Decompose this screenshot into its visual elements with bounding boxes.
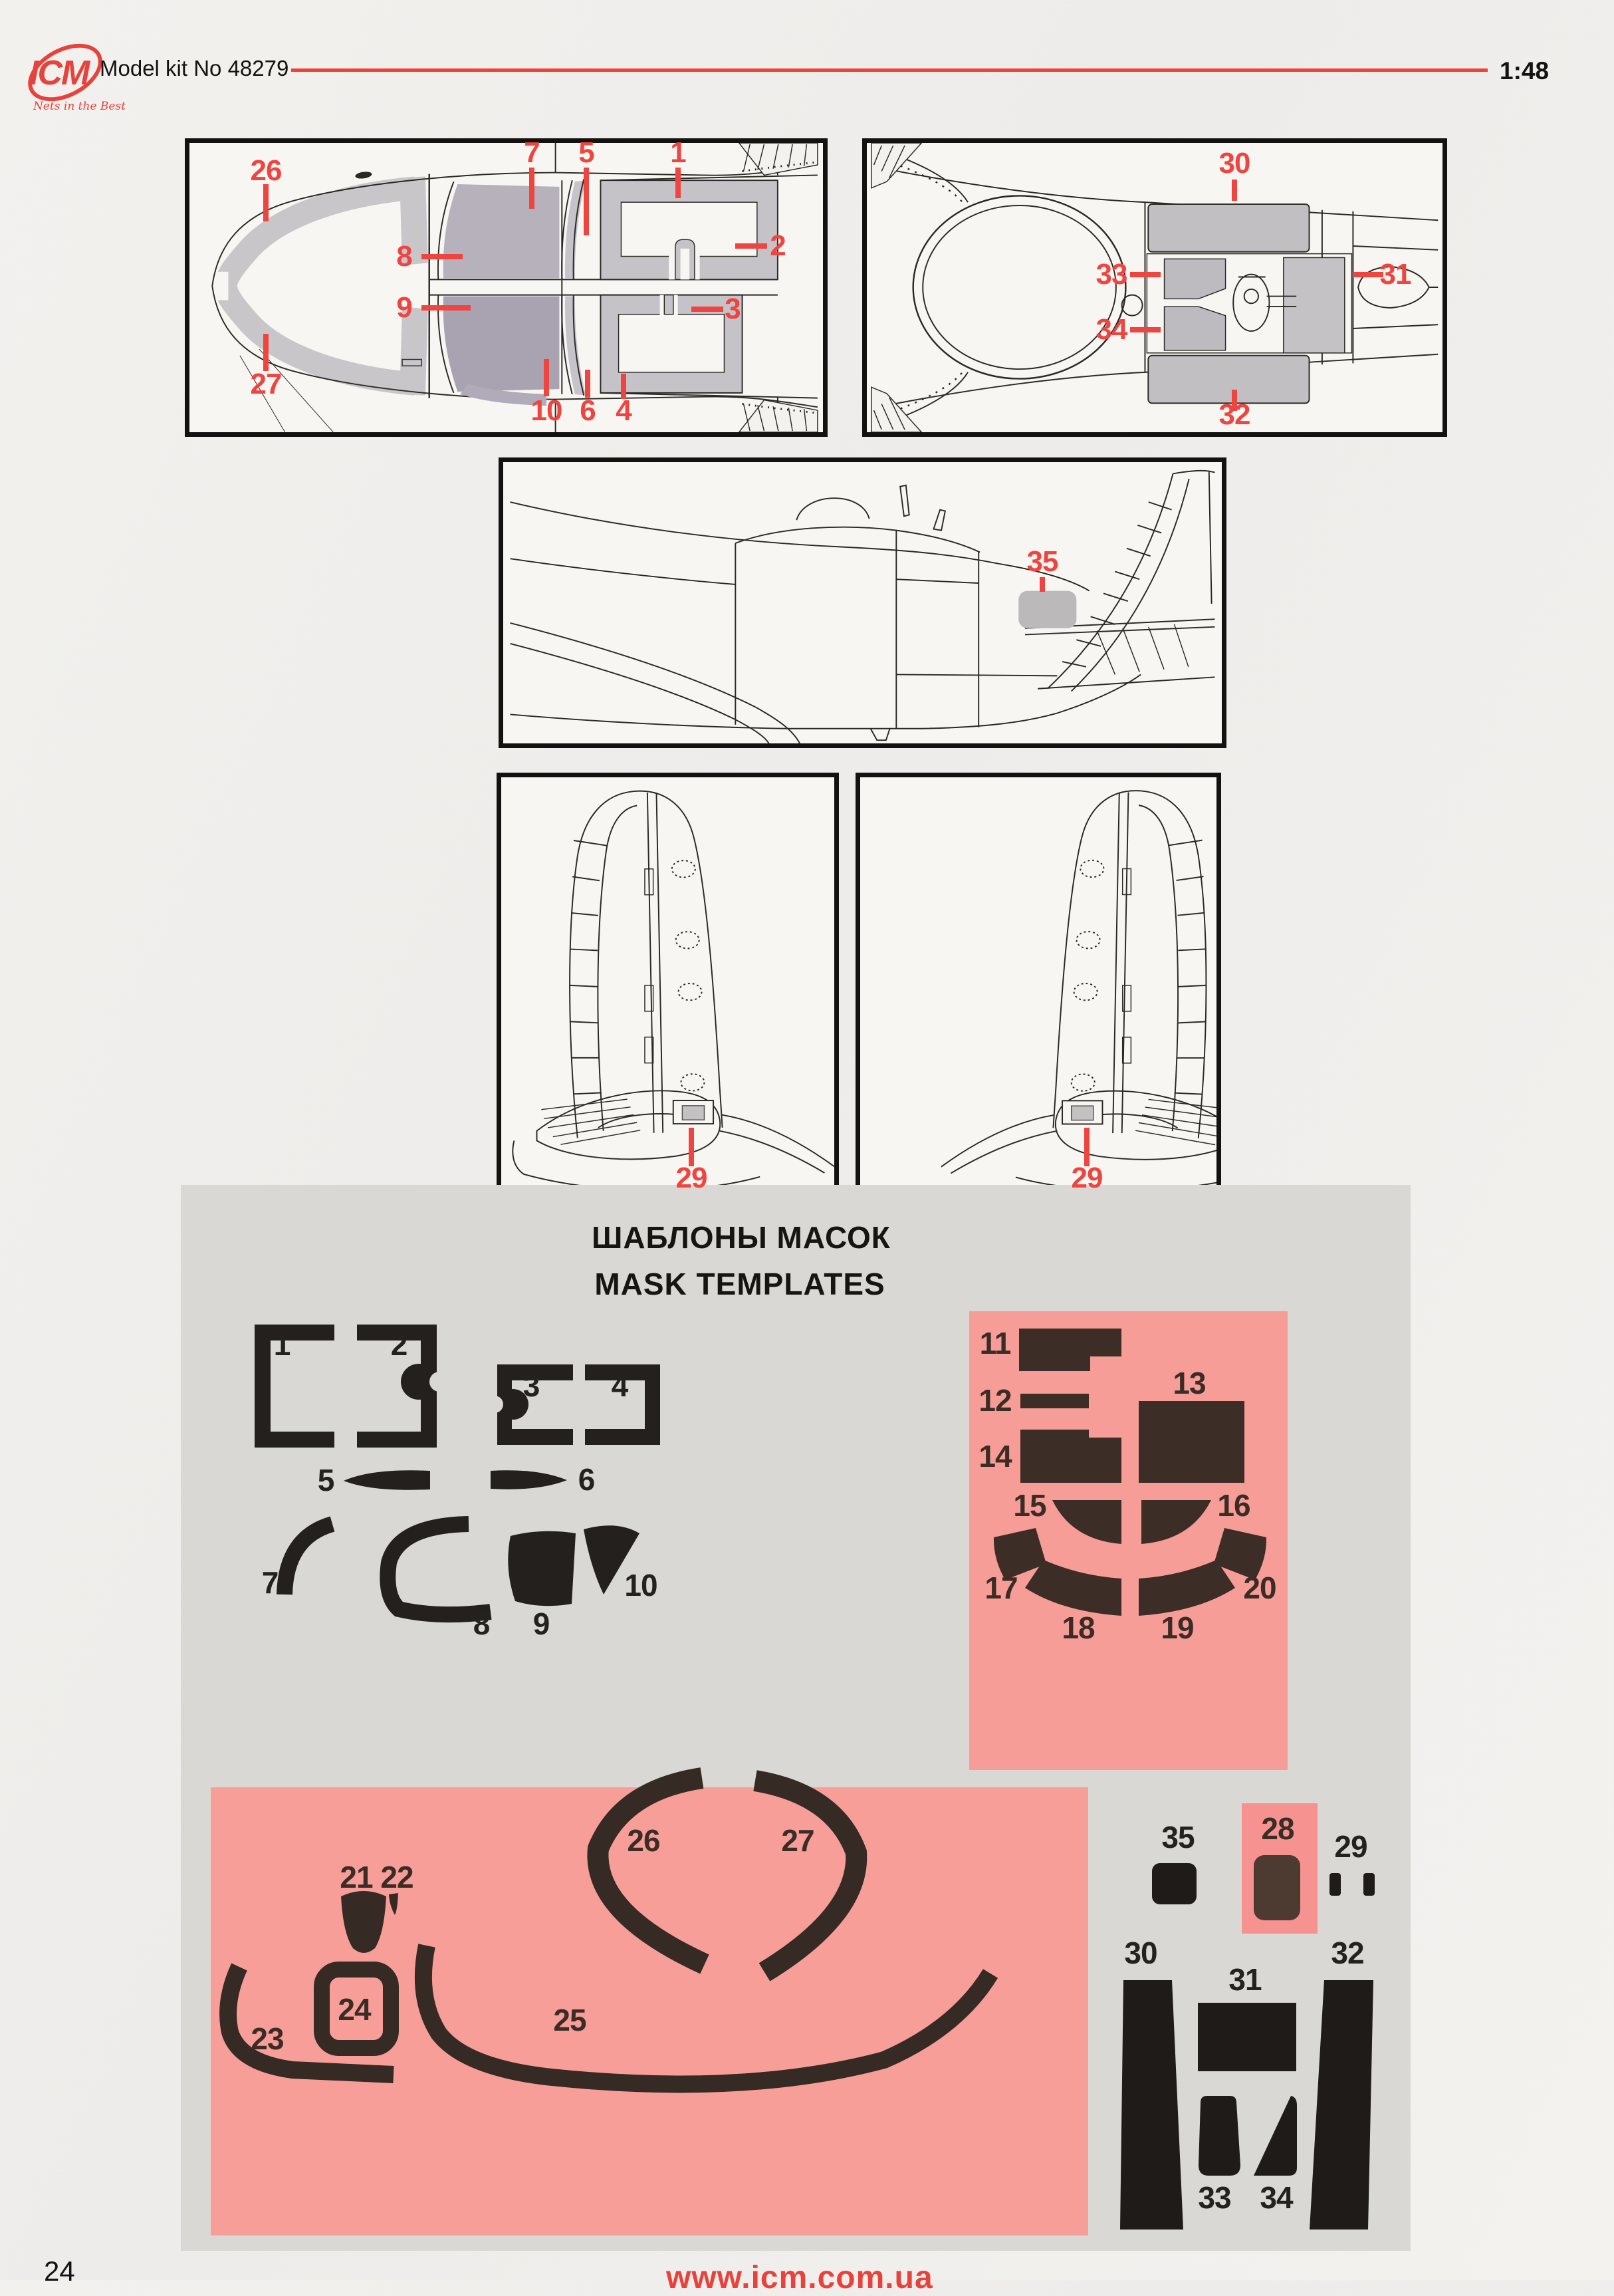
callout-line-4: [621, 374, 626, 399]
mask-template-5: [344, 1470, 430, 1489]
mask-template-label-7: 7: [262, 1565, 279, 1600]
mask-template-shapes: [0, 0, 1614, 2280]
callout-label-27: 27: [251, 368, 282, 401]
callout-line-29: [689, 1128, 694, 1166]
mask-template-30: [1120, 1980, 1183, 2230]
callout-label-35: 35: [1027, 545, 1058, 578]
mask-template-label-21: 21: [340, 1859, 372, 1895]
callout-label-10: 10: [531, 394, 562, 428]
callout-label-31: 31: [1380, 258, 1411, 291]
mask-template-29a: [1329, 1873, 1341, 1896]
mask-template-label-19: 19: [1161, 1610, 1193, 1646]
mask-template-label-16: 16: [1217, 1487, 1250, 1523]
callout-line-26: [263, 184, 269, 221]
mask-template-13: [1139, 1401, 1244, 1483]
callout-line-6: [585, 370, 590, 398]
callout-line-7: [529, 168, 534, 209]
mask-template-label-33: 33: [1198, 2180, 1230, 2216]
mask-template-16: [1141, 1500, 1211, 1544]
mask-template-31: [1198, 2003, 1296, 2071]
mask-template-1: [255, 1325, 334, 1448]
mask-template-label-15: 15: [1013, 1487, 1046, 1523]
mask-template-label-8: 8: [473, 1606, 490, 1642]
mask-template-label-34: 34: [1260, 2180, 1292, 2216]
mask-template-27: [755, 1781, 856, 1972]
mask-template-label-6: 6: [578, 1462, 595, 1497]
callout-label-34: 34: [1096, 313, 1127, 346]
mask-template-25: [423, 1946, 990, 2084]
mask-template-label-22: 22: [380, 1859, 413, 1895]
callout-label-3: 3: [725, 293, 740, 326]
callout-line-31: [1353, 272, 1383, 277]
mask-template-11: [1019, 1329, 1121, 1371]
mask-template-12: [1020, 1394, 1089, 1408]
mask-template-label-20: 20: [1243, 1570, 1276, 1606]
mask-template-18: [1025, 1560, 1121, 1616]
mask-template-34: [1254, 2096, 1297, 2176]
mask-shapes-gray: [255, 1325, 660, 1614]
website-url: www.icm.com.ua: [666, 2259, 933, 2296]
callout-line-35: [1040, 577, 1045, 592]
callout-label-5: 5: [578, 136, 594, 170]
mask-template-label-29: 29: [1334, 1829, 1367, 1864]
callout-label-1: 1: [670, 136, 685, 170]
mask-template-32: [1310, 1980, 1373, 2230]
mask-template-label-12: 12: [979, 1382, 1011, 1418]
mask-shapes-pink-top: [994, 1329, 1266, 1616]
mask-template-label-4: 4: [612, 1368, 628, 1404]
mask-template-9: [508, 1531, 576, 1606]
mask-template-label-17: 17: [984, 1570, 1017, 1606]
mask-template-29b: [1363, 1873, 1375, 1896]
mask-template-label-1: 1: [274, 1327, 290, 1362]
mask-template-label-13: 13: [1173, 1365, 1205, 1401]
mask-template-label-35: 35: [1161, 1819, 1194, 1855]
mask-template-label-30: 30: [1124, 1935, 1157, 1971]
callout-line-27: [263, 334, 269, 371]
callout-line-32: [1232, 390, 1237, 411]
callout-line-8: [421, 254, 463, 259]
mask-template-35: [1152, 1863, 1197, 1904]
callout-line-33: [1130, 272, 1161, 277]
callout-line-29: [1084, 1128, 1090, 1166]
mask-shapes-pink-bottom: [228, 1778, 990, 2084]
mask-template-7: [285, 1524, 332, 1594]
mask-template-label-2: 2: [391, 1327, 407, 1362]
callout-label-4: 4: [616, 394, 631, 428]
mask-template-33: [1199, 2096, 1240, 2176]
mask-template-label-5: 5: [318, 1462, 334, 1498]
mask-template-label-23: 23: [251, 2021, 283, 2057]
mask-template-label-25: 25: [553, 2002, 586, 2038]
callout-line-2: [735, 243, 767, 249]
page-number: 24: [44, 2255, 75, 2287]
callout-label-26: 26: [251, 154, 282, 188]
callout-line-3: [691, 307, 723, 312]
mask-template-label-32: 32: [1331, 1935, 1363, 1971]
mask-template-label-9: 9: [533, 1606, 550, 1642]
mask-template-label-27: 27: [781, 1823, 814, 1858]
mask-shapes-bottom-right: [1120, 1855, 1375, 2230]
mask-template-8: [388, 1524, 491, 1614]
mask-template-label-31: 31: [1228, 1962, 1261, 1997]
callout-label-8: 8: [396, 240, 411, 273]
mask-template-21: [341, 1891, 386, 1953]
mask-template-26: [598, 1778, 705, 1964]
callout-label-7: 7: [524, 136, 539, 170]
mask-template-22: [389, 1893, 398, 1915]
callout-label-6: 6: [580, 394, 595, 428]
mask-template-label-18: 18: [1062, 1610, 1094, 1646]
callout-label-29: 29: [676, 1162, 707, 1195]
callout-line-30: [1232, 180, 1237, 201]
callout-label-2: 2: [770, 229, 785, 263]
mask-template-6: [491, 1470, 567, 1489]
callout-line-34: [1130, 327, 1161, 332]
callout-line-10: [544, 359, 549, 396]
mask-template-label-26: 26: [627, 1823, 659, 1858]
mask-template-label-11: 11: [980, 1325, 1011, 1361]
mask-template-label-14: 14: [979, 1438, 1011, 1474]
mask-template-label-28: 28: [1261, 1811, 1294, 1847]
callout-label-9: 9: [396, 291, 411, 324]
mask-template-19: [1139, 1560, 1235, 1616]
callout-line-1: [675, 168, 681, 198]
callout-label-29: 29: [1072, 1162, 1103, 1195]
callout-line-5: [584, 168, 589, 235]
mask-template-28: [1254, 1855, 1300, 1920]
mask-template-label-24: 24: [338, 1991, 370, 2027]
mask-template-label-3: 3: [523, 1368, 540, 1404]
callout-label-33: 33: [1096, 258, 1127, 291]
mask-template-15: [1052, 1500, 1121, 1544]
callout-line-9: [421, 305, 471, 311]
callout-label-30: 30: [1219, 147, 1250, 180]
mask-template-label-10: 10: [624, 1567, 657, 1603]
mask-template-14: [1020, 1430, 1121, 1483]
